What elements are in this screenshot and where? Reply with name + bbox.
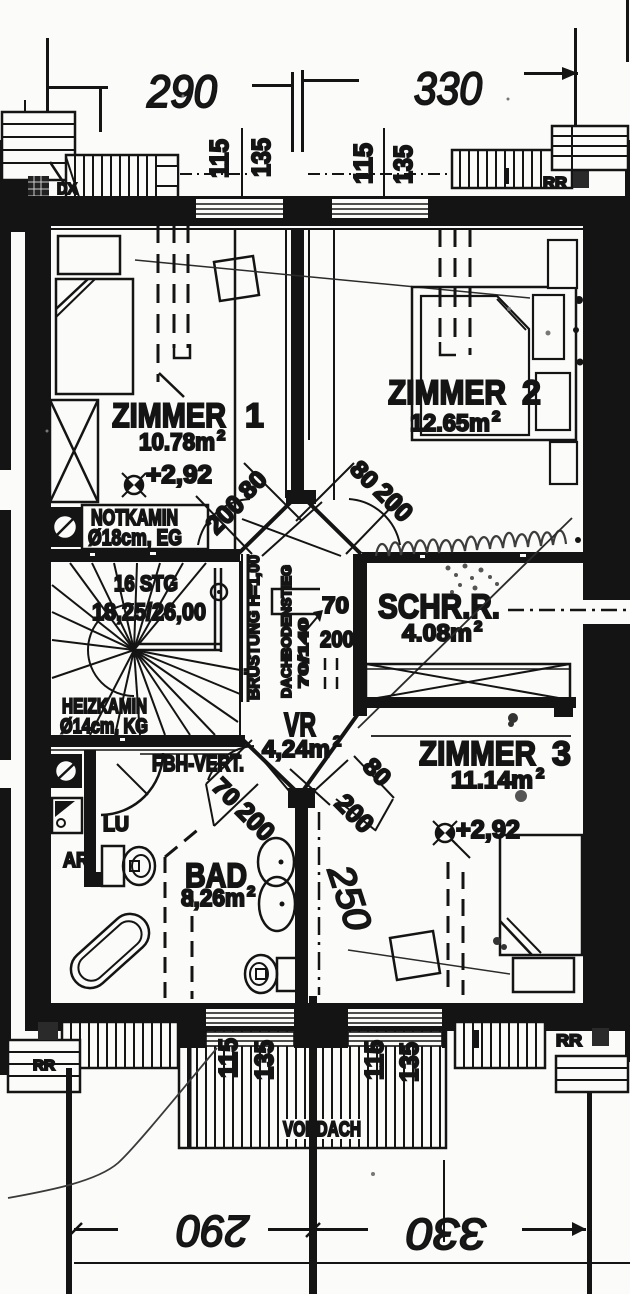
svg-text:70: 70 — [322, 592, 349, 618]
svg-text:1: 1 — [245, 397, 264, 435]
svg-text:290: 290 — [146, 66, 217, 117]
svg-text:3: 3 — [552, 735, 571, 773]
svg-text:LU: LU — [103, 813, 129, 836]
svg-text:135: 135 — [388, 145, 418, 184]
svg-text:DACHBODENSTIEG: DACHBODENSTIEG — [278, 565, 294, 698]
svg-text:DX: DX — [57, 181, 77, 198]
svg-text:115: 115 — [348, 143, 378, 184]
svg-text:330: 330 — [406, 1209, 487, 1258]
svg-text:115: 115 — [213, 1038, 243, 1078]
svg-text:FBH-VERT.: FBH-VERT. — [152, 751, 244, 776]
svg-text:AR: AR — [63, 849, 89, 872]
svg-text:115: 115 — [204, 139, 234, 178]
svg-text:VORDACH: VORDACH — [283, 1118, 361, 1141]
svg-text:4.08m: 4.08m — [402, 620, 472, 647]
svg-text:4,24m: 4,24m — [262, 736, 330, 763]
svg-text:12.65m: 12.65m — [410, 410, 490, 437]
svg-text:ZIMMER: ZIMMER — [388, 374, 506, 412]
svg-text:200: 200 — [320, 626, 354, 652]
svg-text:115: 115 — [359, 1040, 389, 1080]
svg-text:RR: RR — [556, 1031, 582, 1050]
svg-text:135: 135 — [394, 1042, 424, 1082]
svg-text:Ø18cm, EG: Ø18cm, EG — [88, 525, 182, 550]
svg-text:135: 135 — [249, 1040, 279, 1080]
svg-text:2: 2 — [217, 427, 225, 444]
svg-text:2: 2 — [492, 408, 500, 425]
svg-text:135: 135 — [246, 138, 276, 177]
svg-text:290: 290 — [176, 1206, 249, 1255]
svg-text:18,25/26,00: 18,25/26,00 — [92, 599, 206, 626]
svg-text:2: 2 — [474, 618, 482, 635]
svg-text:+2,92: +2,92 — [146, 461, 212, 489]
svg-text:2: 2 — [247, 883, 255, 900]
svg-text:RR: RR — [33, 1057, 55, 1074]
svg-text:RR: RR — [543, 175, 567, 192]
svg-text:Ø14cm, KG: Ø14cm, KG — [60, 715, 148, 738]
svg-text:+2,92: +2,92 — [456, 816, 520, 844]
svg-text:330: 330 — [414, 63, 482, 114]
svg-text:2: 2 — [522, 374, 541, 412]
svg-text:10.78m: 10.78m — [139, 429, 215, 456]
svg-text:2: 2 — [536, 765, 544, 782]
svg-text:11.14m: 11.14m — [451, 767, 533, 794]
svg-text:16 STG: 16 STG — [114, 571, 178, 596]
svg-text:BRÜSTUNG H=1,00: BRÜSTUNG H=1,00 — [244, 555, 263, 700]
